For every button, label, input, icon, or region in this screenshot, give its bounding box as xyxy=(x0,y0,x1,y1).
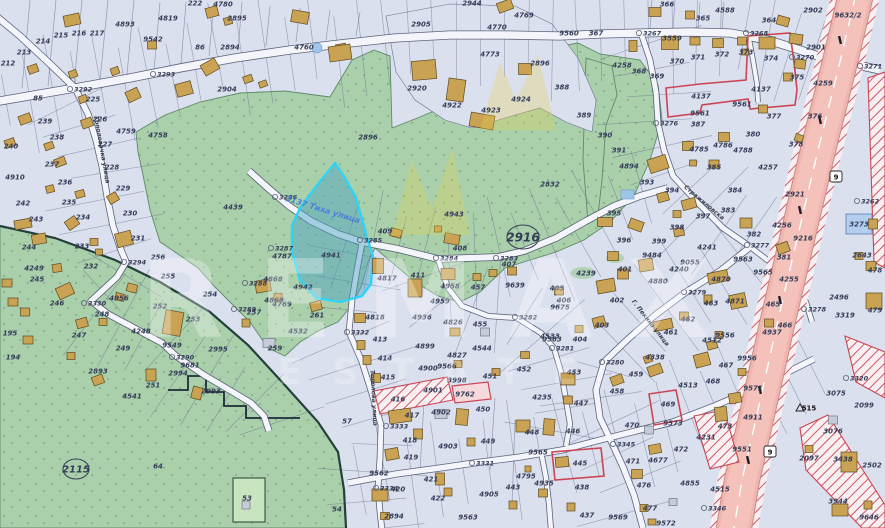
pond xyxy=(312,43,322,53)
building xyxy=(683,142,694,151)
building xyxy=(492,369,500,376)
building xyxy=(543,419,555,436)
building xyxy=(561,373,575,385)
building xyxy=(645,426,654,434)
building xyxy=(649,8,661,17)
building xyxy=(450,328,460,336)
building xyxy=(866,293,882,309)
building xyxy=(414,429,423,439)
parcel-53 xyxy=(233,478,265,522)
building xyxy=(444,488,452,496)
building xyxy=(638,258,654,272)
building xyxy=(372,374,381,383)
building xyxy=(805,446,813,453)
building xyxy=(291,10,310,25)
building xyxy=(388,408,412,424)
building xyxy=(729,292,748,309)
building xyxy=(263,339,275,348)
blue-structure xyxy=(846,214,872,234)
building xyxy=(680,312,689,320)
building xyxy=(148,41,157,49)
building xyxy=(618,269,629,279)
building xyxy=(709,160,719,168)
building xyxy=(728,392,742,404)
building xyxy=(648,444,661,455)
pond xyxy=(621,190,634,199)
building xyxy=(363,356,371,365)
building xyxy=(713,39,724,48)
building xyxy=(455,409,468,426)
building xyxy=(31,233,47,245)
building xyxy=(794,59,806,69)
building xyxy=(719,133,730,142)
building xyxy=(454,361,462,368)
building xyxy=(489,270,497,277)
building xyxy=(96,249,103,255)
building xyxy=(385,447,400,460)
building xyxy=(738,37,747,45)
building xyxy=(864,501,872,509)
building xyxy=(640,505,648,512)
building xyxy=(255,279,272,293)
building xyxy=(742,49,749,55)
building xyxy=(632,470,643,479)
building xyxy=(242,501,250,509)
building xyxy=(869,219,878,229)
building xyxy=(373,259,384,274)
building xyxy=(355,314,366,323)
building xyxy=(759,37,775,49)
building xyxy=(598,218,613,227)
building xyxy=(67,353,75,360)
building xyxy=(521,352,530,359)
building xyxy=(509,501,517,509)
building xyxy=(2,279,12,287)
building xyxy=(357,341,365,350)
building xyxy=(555,456,569,467)
building xyxy=(855,253,863,260)
building xyxy=(759,105,768,113)
map-viewport: 4893481922247802895215216217214213212954… xyxy=(0,0,885,528)
building xyxy=(866,262,876,271)
building xyxy=(539,489,548,497)
building xyxy=(841,452,857,472)
building xyxy=(564,396,573,404)
shrub xyxy=(571,267,596,279)
building xyxy=(372,489,388,501)
building xyxy=(575,326,583,333)
building xyxy=(832,504,848,516)
building xyxy=(714,407,727,422)
building xyxy=(99,319,107,326)
building xyxy=(715,332,723,339)
building xyxy=(146,369,156,381)
building xyxy=(408,279,422,297)
building xyxy=(23,336,33,344)
building xyxy=(90,239,98,246)
building xyxy=(596,278,616,294)
building xyxy=(648,519,656,525)
building xyxy=(411,59,437,80)
building xyxy=(467,438,475,446)
building xyxy=(704,295,712,303)
building xyxy=(784,73,793,81)
building xyxy=(669,499,677,506)
building xyxy=(441,269,455,280)
building xyxy=(829,416,838,424)
building xyxy=(686,11,695,19)
building xyxy=(436,473,445,485)
red-filled-parcel xyxy=(452,382,491,403)
building xyxy=(740,218,752,228)
building xyxy=(789,33,803,45)
building xyxy=(516,420,530,432)
building xyxy=(473,274,481,281)
building xyxy=(690,160,697,166)
building xyxy=(21,308,30,316)
building xyxy=(765,319,774,327)
building xyxy=(223,17,233,26)
building xyxy=(242,319,250,327)
building xyxy=(567,503,575,511)
building xyxy=(508,267,517,275)
building xyxy=(738,369,746,376)
building xyxy=(673,211,681,218)
building xyxy=(525,466,531,472)
building xyxy=(608,252,619,261)
building xyxy=(446,78,466,102)
building xyxy=(481,328,490,336)
building xyxy=(690,37,700,45)
building xyxy=(435,410,447,419)
building xyxy=(629,41,637,52)
building xyxy=(381,513,390,520)
building xyxy=(274,294,282,301)
building xyxy=(52,263,62,272)
building xyxy=(328,44,352,62)
building xyxy=(555,287,564,295)
building xyxy=(8,298,18,306)
building xyxy=(673,227,684,237)
map-canvas[interactable]: 4893481922247802895215216217214213212954… xyxy=(0,0,885,528)
building xyxy=(662,37,679,50)
building xyxy=(162,310,184,337)
